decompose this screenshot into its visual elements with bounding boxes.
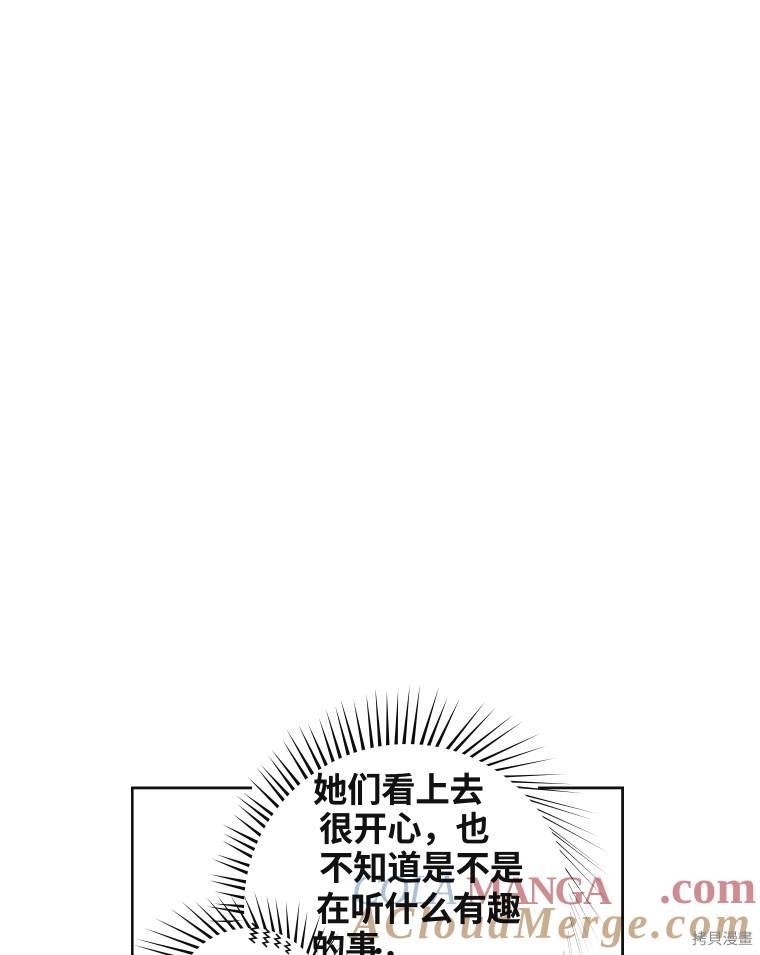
svg-text:ACloudMerge.com: ACloudMerge.com [348,898,753,948]
